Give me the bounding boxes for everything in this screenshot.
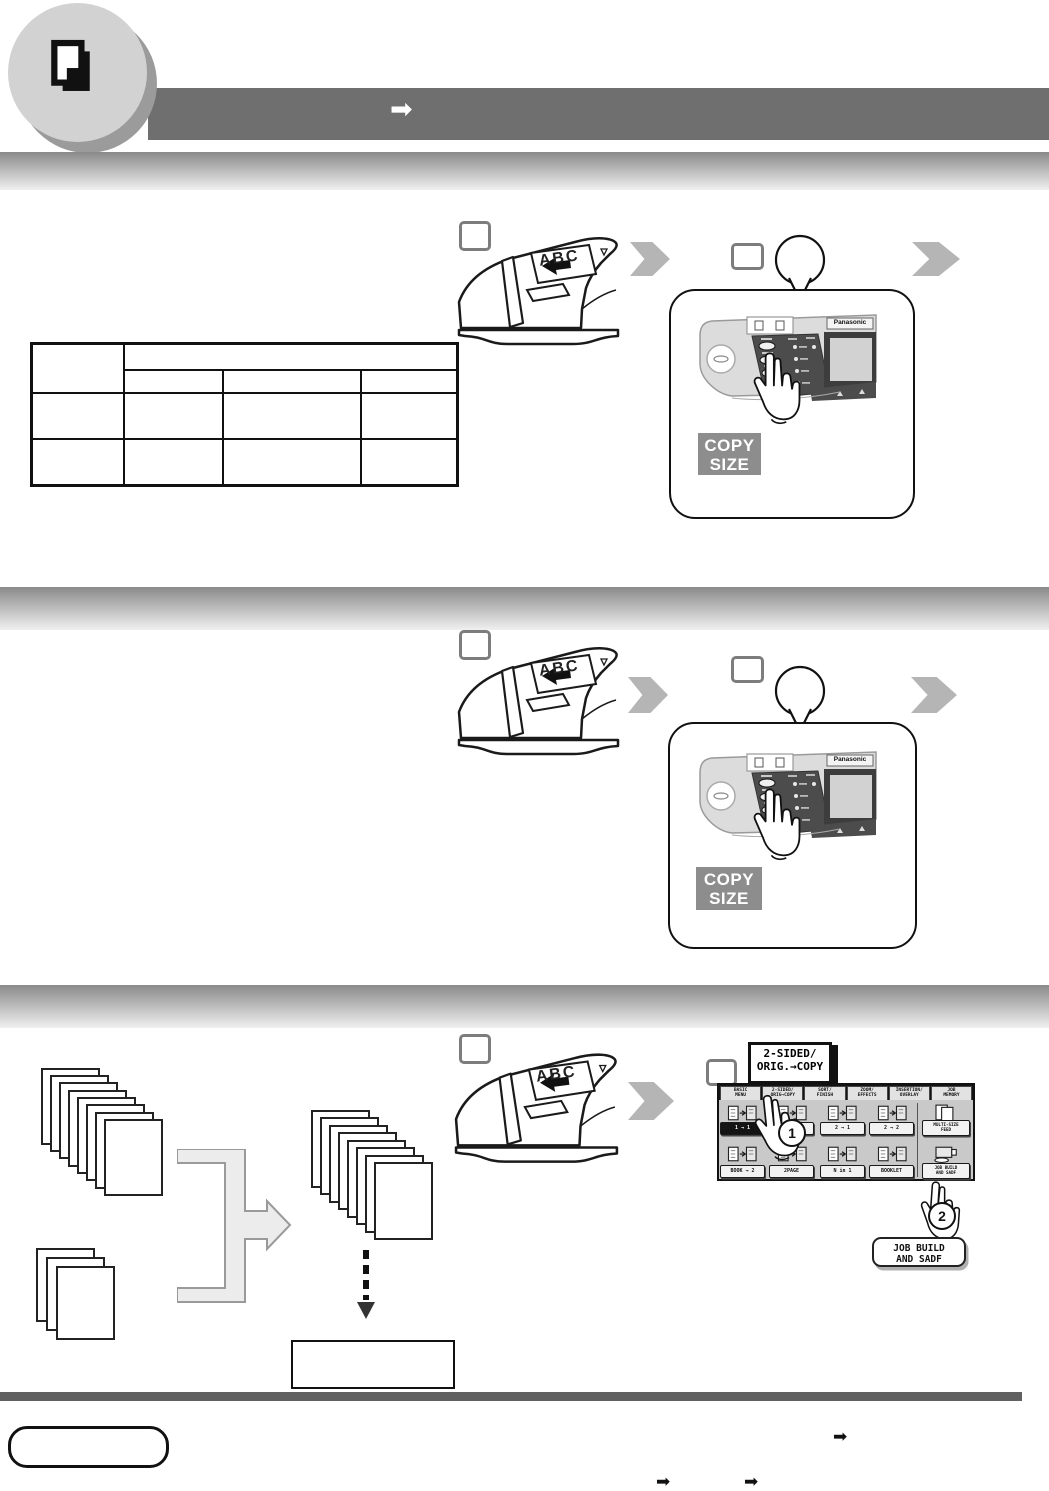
header-arrow-icon: ➡ [390,96,413,123]
callout-line1: 2-SIDED/ [751,1047,829,1060]
page-sheet [56,1266,115,1340]
pages-icon [827,1104,857,1122]
copy-size-key-label: COPY SIZE [696,867,762,910]
pages-icon [727,1145,757,1163]
step-number-box [731,656,764,683]
scanner-drawing [452,1046,624,1168]
sadf-icon [930,1145,960,1163]
tab-job-memory[interactable]: JOBMEMORY [931,1086,972,1100]
flow-chevron-icon [912,242,960,276]
button-label: AND SADF [923,1170,969,1175]
adf-scanner-figure: ABC [452,1046,624,1168]
copy-size-line1: COPY [698,436,761,455]
pages-icon [827,1145,857,1163]
chapter-badge [8,3,147,142]
scanner-drawing [455,230,625,350]
dashed-down-arrow [355,1248,377,1322]
section-bar-1 [0,152,1049,190]
tab-label: OVERLAY [900,1093,919,1098]
pointing-hand-icon [750,786,806,862]
table-cell [361,439,458,486]
button-multi-size-feed[interactable]: MULTI-SIZE FEED [922,1120,970,1136]
job-build-sadf-callout[interactable]: JOB BUILD AND SADF [872,1237,966,1267]
button-2-to-2[interactable]: 2 → 2 [869,1122,914,1135]
table-cell [124,439,223,486]
button-2-to-1[interactable]: 2 → 1 [820,1122,865,1135]
tab-label: EFFECTS [858,1093,877,1098]
flow-chevron-icon [911,677,957,713]
brand-logo: Panasonic [827,317,873,329]
section-bar-3 [0,985,1049,1028]
manual-page: ➡ [0,0,1049,1491]
table-cell [223,439,361,486]
page-sheet [374,1162,433,1240]
page-sheet [104,1119,163,1196]
pages-icon [877,1145,907,1163]
inline-arrow-icon: ➡ [833,1428,847,1445]
flow-chevron-icon [628,1082,674,1120]
button-label: FEED [923,1127,969,1132]
panel-callout-box: Panasonic COPY SIZE [669,289,915,519]
pages-icon [877,1104,907,1122]
inline-arrow-icon: ➡ [744,1473,758,1490]
inline-arrow-icon: ➡ [656,1473,670,1490]
table-cell [223,393,361,439]
table-cell [223,370,361,393]
pointing-hand-icon [750,350,806,426]
copy-document-icon [46,31,96,103]
footer-bar [0,1392,1022,1401]
panel-callout-box: Panasonic COPY SIZE [668,722,917,949]
job-build-line2: AND SADF [874,1254,964,1265]
note-box [8,1426,169,1468]
scanner-drawing [455,640,625,760]
tab-insertion-overlay[interactable]: INSERTION/OVERLAY [889,1086,930,1100]
screen-divider [917,1103,918,1177]
table-cell [32,439,125,486]
flow-chevron-icon [628,677,668,713]
tab-label: MEMORY [943,1093,959,1098]
table-cell [124,344,458,371]
tab-sort-finish[interactable]: SORT/FINISH [804,1086,845,1100]
copy-size-line1: COPY [696,870,762,889]
button-n-in-1[interactable]: N in 1 [820,1165,865,1178]
tab-label: FINISH [817,1093,833,1098]
button-job-build-and-sadf[interactable]: JOB BUILD AND SADF [922,1163,970,1179]
step-number-box [706,1059,737,1086]
copy-size-line2: SIZE [696,889,762,908]
button-book-to-2[interactable]: BOOK → 2 [720,1165,765,1178]
table-cell [32,344,125,394]
spec-table [30,342,459,487]
two-sided-callout: 2-SIDED/ ORIG.→COPY [748,1042,832,1084]
result-label-box [291,1340,455,1389]
header-bar [148,88,1049,140]
tab-label: MENU [735,1093,746,1098]
tab-zoom-effects[interactable]: ZOOM/EFFECTS [847,1086,888,1100]
spec-table-grid [30,342,459,487]
table-cell [124,393,223,439]
step-circle-1: 1 [778,1119,806,1147]
button-2page[interactable]: 2PAGE [769,1165,814,1178]
table-cell [124,370,223,393]
button-booklet[interactable]: BOOKLET [869,1165,914,1178]
adf-scanner-figure: ABC [455,640,625,760]
merge-bracket-arrow [177,1149,292,1304]
step-number-box [731,243,764,270]
flow-chevron-icon [630,242,670,276]
table-cell [32,393,125,439]
table-cell [361,393,458,439]
callout-line2: ORIG.→COPY [751,1060,829,1073]
job-build-line1: JOB BUILD [874,1243,964,1254]
copy-size-key-label: COPY SIZE [698,433,761,475]
table-cell [361,370,458,393]
step-circle-2: 2 [928,1202,956,1230]
adf-scanner-figure: ABC [455,230,625,350]
copy-size-line2: SIZE [698,455,761,474]
section-bar-2 [0,587,1049,630]
brand-logo: Panasonic [827,754,873,766]
